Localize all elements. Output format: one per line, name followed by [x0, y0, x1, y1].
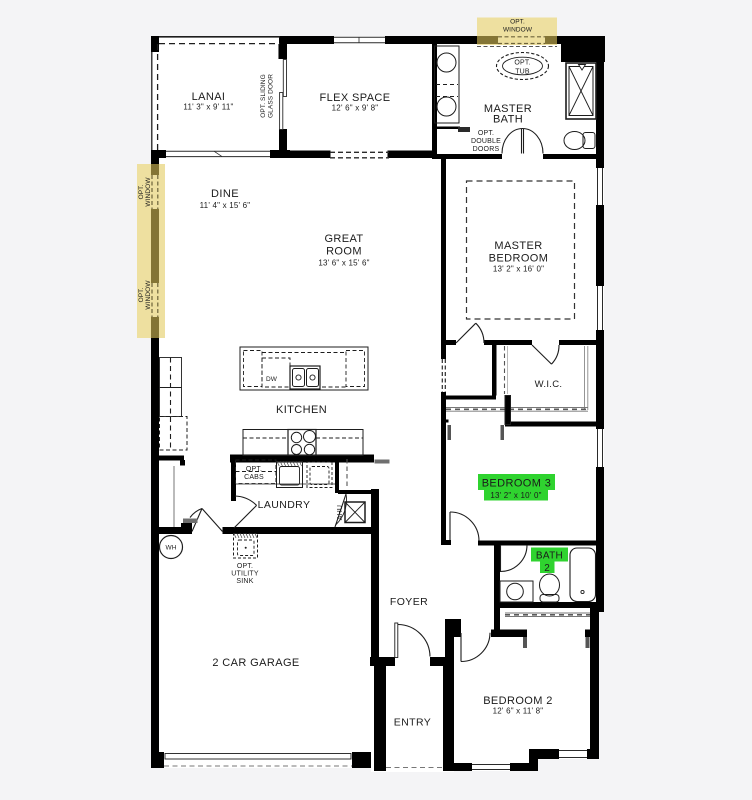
svg-text:W.I.C.: W.I.C. — [535, 379, 563, 390]
svg-text:2 CAR GARAGE: 2 CAR GARAGE — [212, 657, 299, 669]
svg-text:OPT. SLIDING: OPT. SLIDING — [260, 74, 267, 117]
svg-text:WINDOW: WINDOW — [503, 27, 533, 34]
svg-text:OPT.: OPT. — [237, 563, 253, 570]
svg-text:LAUNDRY: LAUNDRY — [258, 499, 311, 511]
svg-text:GLASS DOOR: GLASS DOOR — [268, 74, 275, 118]
svg-text:OPT.: OPT. — [478, 130, 494, 137]
svg-text:11' 4" x 15' 6": 11' 4" x 15' 6" — [200, 201, 251, 210]
svg-text:ROOM: ROOM — [326, 246, 362, 258]
svg-text:OPT.: OPT. — [246, 466, 262, 473]
svg-text:13' 2" x 16' 0": 13' 2" x 16' 0" — [493, 265, 544, 274]
svg-text:UTILITY: UTILITY — [231, 571, 259, 578]
svg-text:LANAI: LANAI — [192, 91, 226, 103]
svg-text:GREAT: GREAT — [324, 233, 363, 245]
svg-text:WINDOW: WINDOW — [145, 177, 152, 207]
svg-text:BEDROOM 2: BEDROOM 2 — [483, 695, 553, 707]
svg-text:CABS: CABS — [244, 474, 264, 481]
svg-text:DOUBLE: DOUBLE — [471, 138, 501, 145]
svg-text:12' 6" x 11' 8": 12' 6" x 11' 8" — [493, 707, 544, 716]
svg-text:WH: WH — [165, 545, 176, 552]
svg-text:DOORS: DOORS — [473, 146, 500, 153]
svg-text:11' 3" x 9' 11": 11' 3" x 9' 11" — [183, 103, 233, 112]
svg-text:DW: DW — [266, 376, 278, 383]
svg-text:AHU: AHU — [337, 505, 344, 520]
svg-text:OPT.: OPT. — [138, 184, 145, 199]
svg-text:KITCHEN: KITCHEN — [276, 404, 327, 416]
svg-text:OPT.: OPT. — [138, 287, 145, 302]
svg-text:BATH: BATH — [493, 114, 523, 126]
svg-text:BATH: BATH — [536, 551, 563, 562]
svg-text:12' 6" x 9' 8": 12' 6" x 9' 8" — [332, 104, 379, 113]
svg-text:OPT.: OPT. — [514, 60, 530, 67]
svg-text:DINE: DINE — [211, 188, 239, 200]
svg-text:FLEX SPACE: FLEX SPACE — [319, 92, 390, 104]
svg-text:OPT.: OPT. — [510, 19, 525, 26]
svg-text:BEDROOM 3: BEDROOM 3 — [482, 478, 552, 490]
svg-text:13' 2" x 10' 0": 13' 2" x 10' 0" — [490, 491, 541, 500]
svg-text:ENTRY: ENTRY — [394, 717, 431, 729]
svg-text:TUB: TUB — [515, 69, 530, 76]
svg-text:2: 2 — [544, 563, 550, 574]
svg-text:13' 6" x 15' 6": 13' 6" x 15' 6" — [318, 259, 369, 268]
svg-text:WINDOW: WINDOW — [145, 280, 152, 310]
svg-text:MASTER: MASTER — [494, 240, 542, 252]
svg-text:SINK: SINK — [236, 578, 253, 585]
svg-text:FOYER: FOYER — [390, 596, 428, 608]
svg-text:BEDROOM: BEDROOM — [489, 253, 549, 265]
